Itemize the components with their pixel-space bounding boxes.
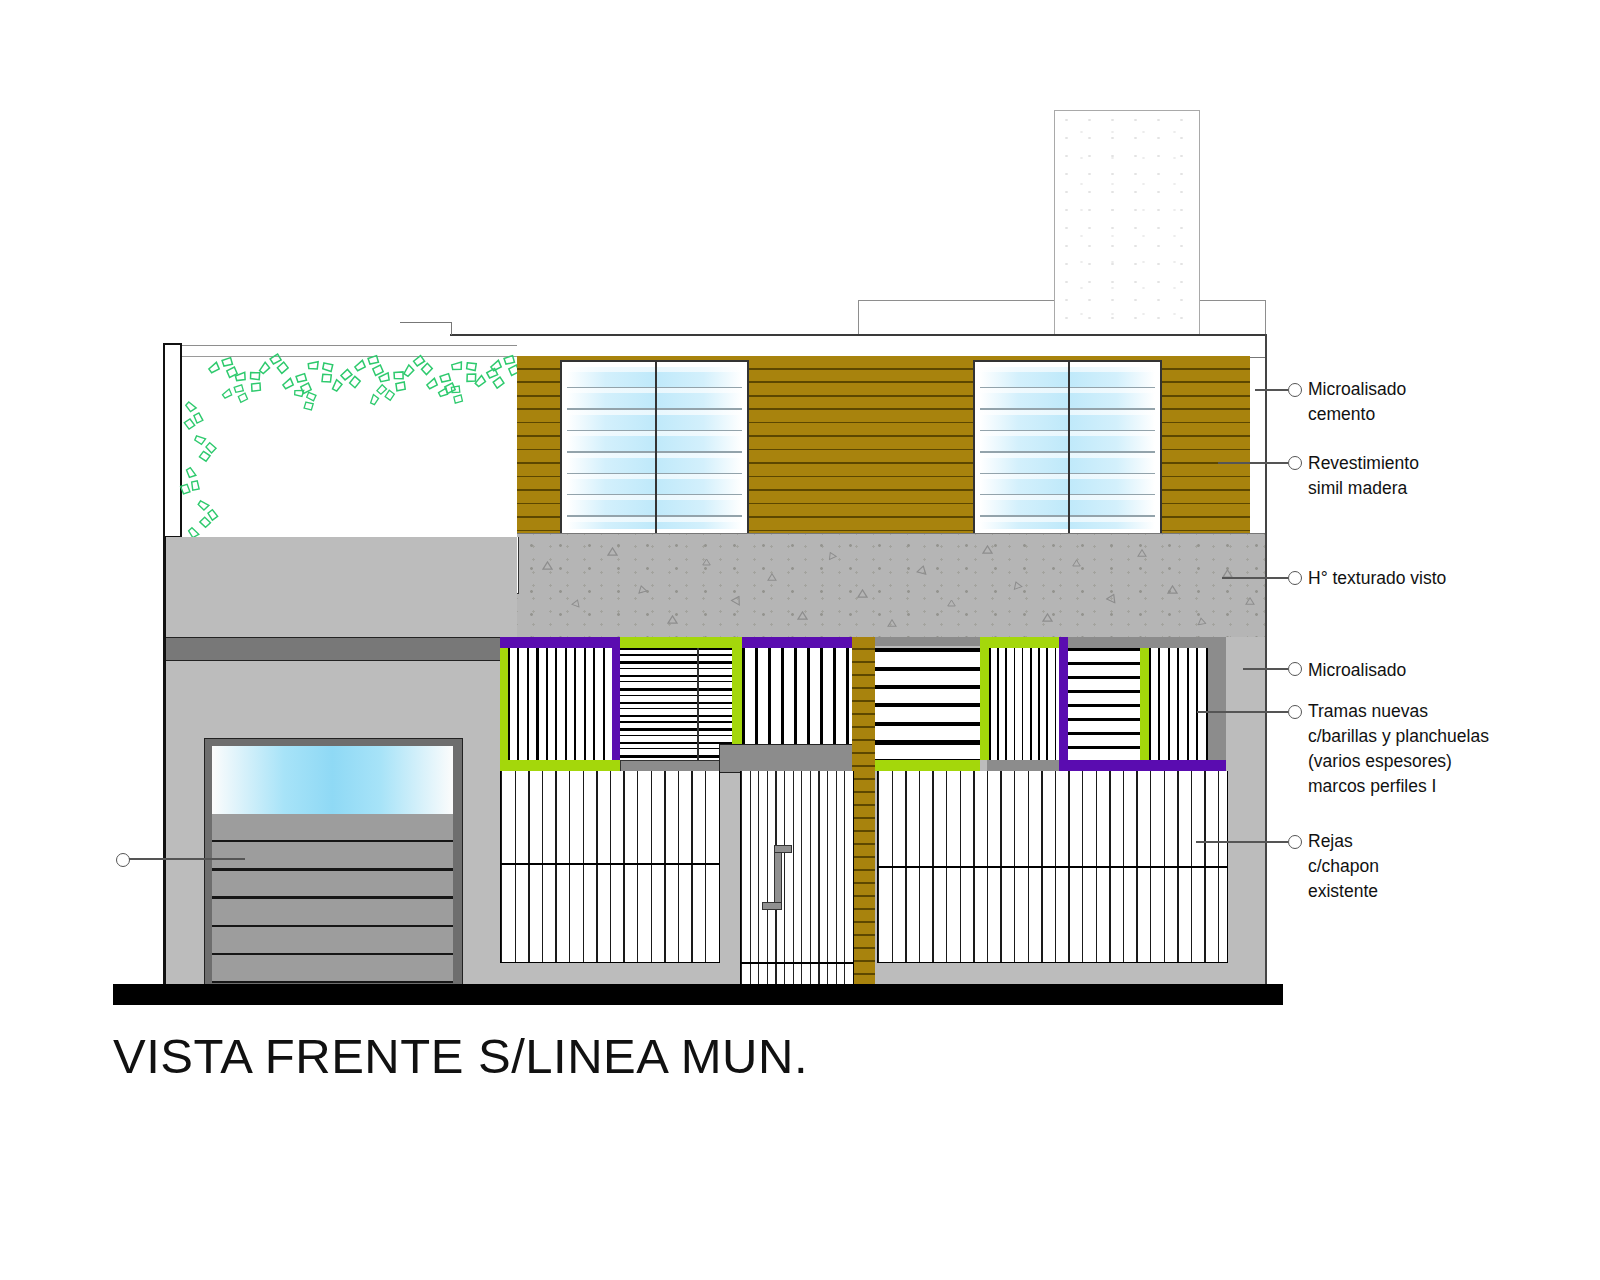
panel-f-grille-left bbox=[1068, 648, 1140, 760]
upper-left-wall bbox=[163, 537, 517, 637]
panel-b-divider bbox=[697, 648, 699, 760]
panel-a-frame-top bbox=[500, 637, 620, 648]
panel-f-frame-bottom bbox=[1068, 760, 1226, 771]
annotation-rejas: Rejas c/chapon existente bbox=[1308, 829, 1379, 904]
leader-circle bbox=[1288, 662, 1302, 676]
drawing-title: VISTA FRENTE S/LINEA MUN. bbox=[113, 1028, 808, 1084]
panel-d-frame-top bbox=[875, 637, 980, 646]
dark-trim-stripe bbox=[163, 637, 502, 661]
reja-right bbox=[877, 771, 1228, 963]
annotation-line: Revestimiento bbox=[1308, 451, 1419, 476]
panel-e-frame-top bbox=[980, 637, 1060, 648]
annotation-line: c/chapon bbox=[1308, 854, 1379, 879]
panel-f-divider bbox=[1140, 648, 1149, 760]
concrete-triangle-speckles-icon bbox=[517, 533, 1267, 637]
leader-line bbox=[1196, 841, 1288, 843]
door-handle-bottom bbox=[762, 902, 782, 910]
annotation-line: (varios espesores) bbox=[1308, 749, 1489, 774]
annotation-microalisado: Microalisado bbox=[1308, 658, 1406, 683]
vine-left-column bbox=[180, 400, 220, 555]
annotation-tramas-nuevas: Tramas nuevas c/barillas y planchuelas (… bbox=[1308, 699, 1489, 799]
annotation-line: cemento bbox=[1308, 402, 1406, 427]
leader-line bbox=[1218, 462, 1288, 464]
panel-d-grille bbox=[875, 648, 980, 760]
door-handle-top bbox=[774, 845, 792, 853]
door-handle bbox=[774, 845, 782, 910]
annotation-line: existente bbox=[1308, 879, 1379, 904]
vine-top-row bbox=[209, 352, 519, 412]
annotation-line: Microalisado bbox=[1308, 377, 1406, 402]
leader-circle bbox=[1288, 571, 1302, 585]
window-1-mullion bbox=[655, 362, 657, 534]
annotation-line: Rejas bbox=[1308, 829, 1379, 854]
leader-circle bbox=[1288, 456, 1302, 470]
annotation-revestimiento: Revestimiento simil madera bbox=[1308, 451, 1419, 501]
reja-right-rail bbox=[878, 866, 1227, 868]
panel-f-frame-top bbox=[1068, 637, 1226, 648]
roof-step-line bbox=[400, 322, 452, 335]
annotation-h-texturado: H° texturado visto bbox=[1308, 566, 1446, 591]
leader-line bbox=[1243, 668, 1288, 670]
leader-line bbox=[1255, 389, 1288, 391]
building-left-edge bbox=[163, 537, 166, 984]
panel-d-frame-bottom bbox=[875, 760, 980, 771]
elevation-drawing-canvas: Microalisado cemento Revestimiento simil… bbox=[0, 0, 1600, 1280]
annotation-line: c/barillas y planchuelas bbox=[1308, 724, 1489, 749]
leader-circle bbox=[1288, 383, 1302, 397]
window-2-mullion bbox=[1068, 362, 1070, 534]
panel-f-frame-right bbox=[1208, 648, 1226, 760]
roof-fascia bbox=[450, 334, 1267, 358]
reja-left-rail bbox=[501, 863, 719, 865]
panel-f-grille-right bbox=[1149, 648, 1208, 760]
window-1 bbox=[560, 360, 749, 536]
panel-f-frame-left bbox=[1059, 637, 1068, 771]
leader-circle bbox=[1288, 835, 1302, 849]
panel-c-frame-top bbox=[742, 637, 852, 648]
annotation-line: H° texturado visto bbox=[1308, 566, 1446, 591]
annotation-line: Microalisado bbox=[1308, 658, 1406, 683]
central-wood-slat-strip bbox=[852, 637, 875, 984]
vine-foliage-icon bbox=[170, 345, 530, 555]
garage-slats bbox=[212, 814, 453, 983]
chimney bbox=[1054, 110, 1200, 336]
ground-line bbox=[113, 984, 1283, 1005]
annotation-line: marcos perfiles I bbox=[1308, 774, 1489, 799]
leader-line bbox=[129, 858, 245, 860]
annotation-line: simil madera bbox=[1308, 476, 1419, 501]
leader-line bbox=[1197, 711, 1288, 713]
panel-e-frame-left bbox=[980, 648, 989, 760]
panel-e-grille bbox=[989, 648, 1059, 760]
panel-e-sill bbox=[987, 760, 1060, 771]
triangle-scatter bbox=[543, 546, 1254, 626]
entry-door bbox=[740, 771, 854, 984]
annotation-microalisado-cemento: Microalisado cemento bbox=[1308, 377, 1406, 427]
entry-door-rail bbox=[741, 962, 853, 964]
building-right-edge bbox=[1265, 334, 1267, 984]
panel-a-frame-right bbox=[612, 648, 620, 760]
window-2 bbox=[973, 360, 1162, 536]
panel-a-grille bbox=[508, 648, 612, 760]
leader-circle bbox=[116, 853, 130, 867]
panel-b-frame-top bbox=[620, 637, 742, 648]
leader-line bbox=[1222, 577, 1288, 579]
annotation-line: Tramas nuevas bbox=[1308, 699, 1489, 724]
reja-left bbox=[500, 771, 720, 963]
garage-glass-band bbox=[212, 746, 453, 814]
panel-b-grille bbox=[620, 648, 732, 760]
panel-a-frame-bottom bbox=[500, 760, 620, 771]
leader-circle bbox=[1288, 705, 1302, 719]
panel-a-frame-left bbox=[500, 648, 508, 760]
panel-c-grille bbox=[742, 648, 852, 744]
